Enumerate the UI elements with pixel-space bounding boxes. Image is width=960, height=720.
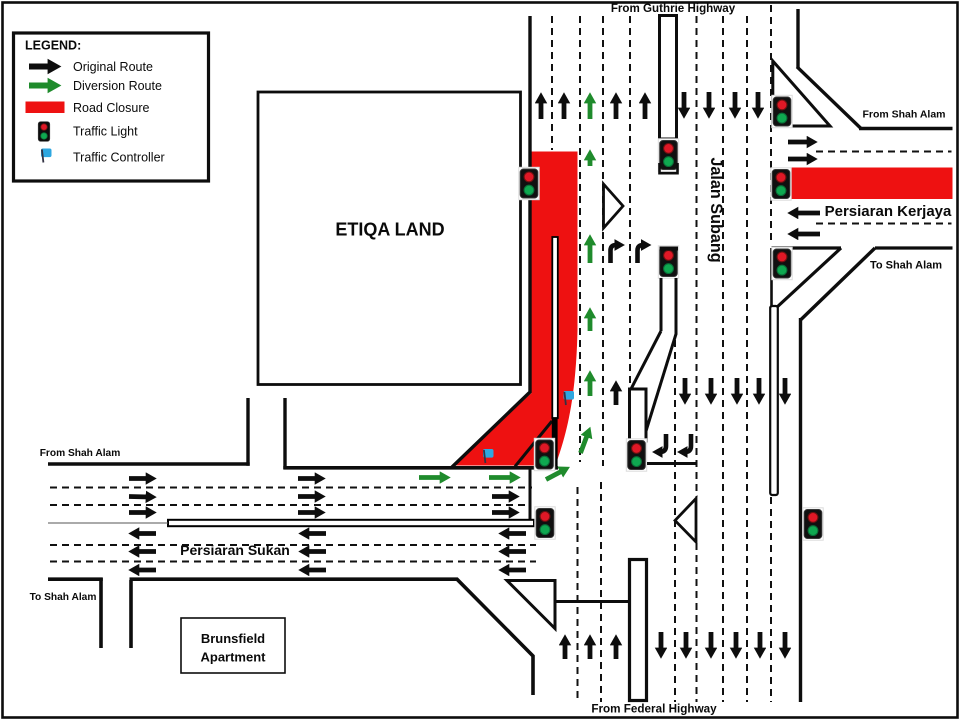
svg-text:From Shah Alam: From Shah Alam — [862, 109, 945, 121]
svg-text:From Federal Highway: From Federal Highway — [591, 703, 717, 716]
svg-text:Original Route: Original Route — [73, 60, 153, 74]
svg-text:ETIQA LAND: ETIQA LAND — [335, 220, 444, 240]
svg-text:To Shah Alam: To Shah Alam — [870, 260, 942, 272]
svg-text:Diversion Route: Diversion Route — [73, 79, 162, 93]
svg-text:LEGEND:: LEGEND: — [25, 39, 81, 53]
svg-text:Brunsfield: Brunsfield — [201, 631, 265, 646]
svg-text:Traffic Controller: Traffic Controller — [73, 151, 165, 165]
svg-text:Persiaran Kerjaya: Persiaran Kerjaya — [825, 203, 952, 220]
svg-text:Traffic Light: Traffic Light — [73, 125, 138, 139]
svg-text:Road Closure: Road Closure — [73, 101, 149, 115]
svg-text:From Guthrie Highway: From Guthrie Highway — [611, 2, 736, 15]
svg-text:From Shah Alam: From Shah Alam — [40, 448, 121, 459]
svg-text:Apartment: Apartment — [200, 650, 266, 665]
svg-text:Jalan Subang: Jalan Subang — [707, 157, 725, 262]
svg-text:Persiaran Sukan: Persiaran Sukan — [180, 542, 290, 558]
svg-text:To Shah Alam: To Shah Alam — [30, 592, 97, 603]
